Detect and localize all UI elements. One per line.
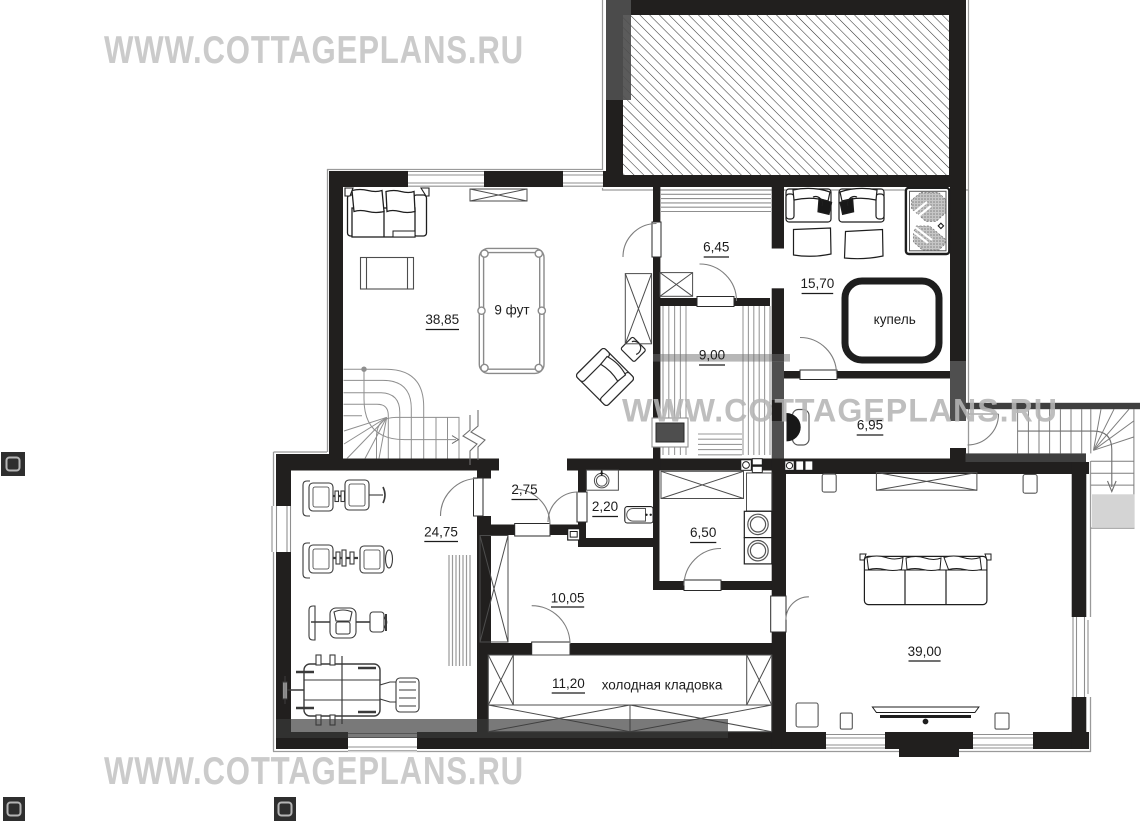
- svg-text:холодная кладовка: холодная кладовка: [602, 678, 723, 693]
- svg-text:15,70: 15,70: [801, 276, 835, 291]
- svg-text:6,95: 6,95: [857, 418, 883, 433]
- svg-text:9,00: 9,00: [699, 348, 725, 363]
- svg-text:39,00: 39,00: [908, 644, 942, 659]
- svg-text:24,75: 24,75: [424, 524, 458, 539]
- svg-text:WWW.COTTAGEPLANS.RU: WWW.COTTAGEPLANS.RU: [104, 29, 524, 72]
- svg-text:6,50: 6,50: [690, 525, 716, 540]
- svg-text:38,85: 38,85: [425, 312, 459, 327]
- svg-text:9 фут: 9 фут: [494, 303, 529, 318]
- svg-text:11,20: 11,20: [552, 676, 585, 691]
- svg-text:6,45: 6,45: [703, 240, 729, 255]
- svg-text:WWW.COTTAGEPLANS.RU: WWW.COTTAGEPLANS.RU: [622, 393, 1058, 429]
- svg-text:2,20: 2,20: [592, 499, 618, 514]
- svg-text:WWW.COTTAGEPLANS.RU: WWW.COTTAGEPLANS.RU: [104, 750, 524, 793]
- svg-text:купель: купель: [874, 312, 916, 327]
- svg-text:10,05: 10,05: [551, 590, 585, 605]
- svg-text:2,75: 2,75: [511, 482, 537, 497]
